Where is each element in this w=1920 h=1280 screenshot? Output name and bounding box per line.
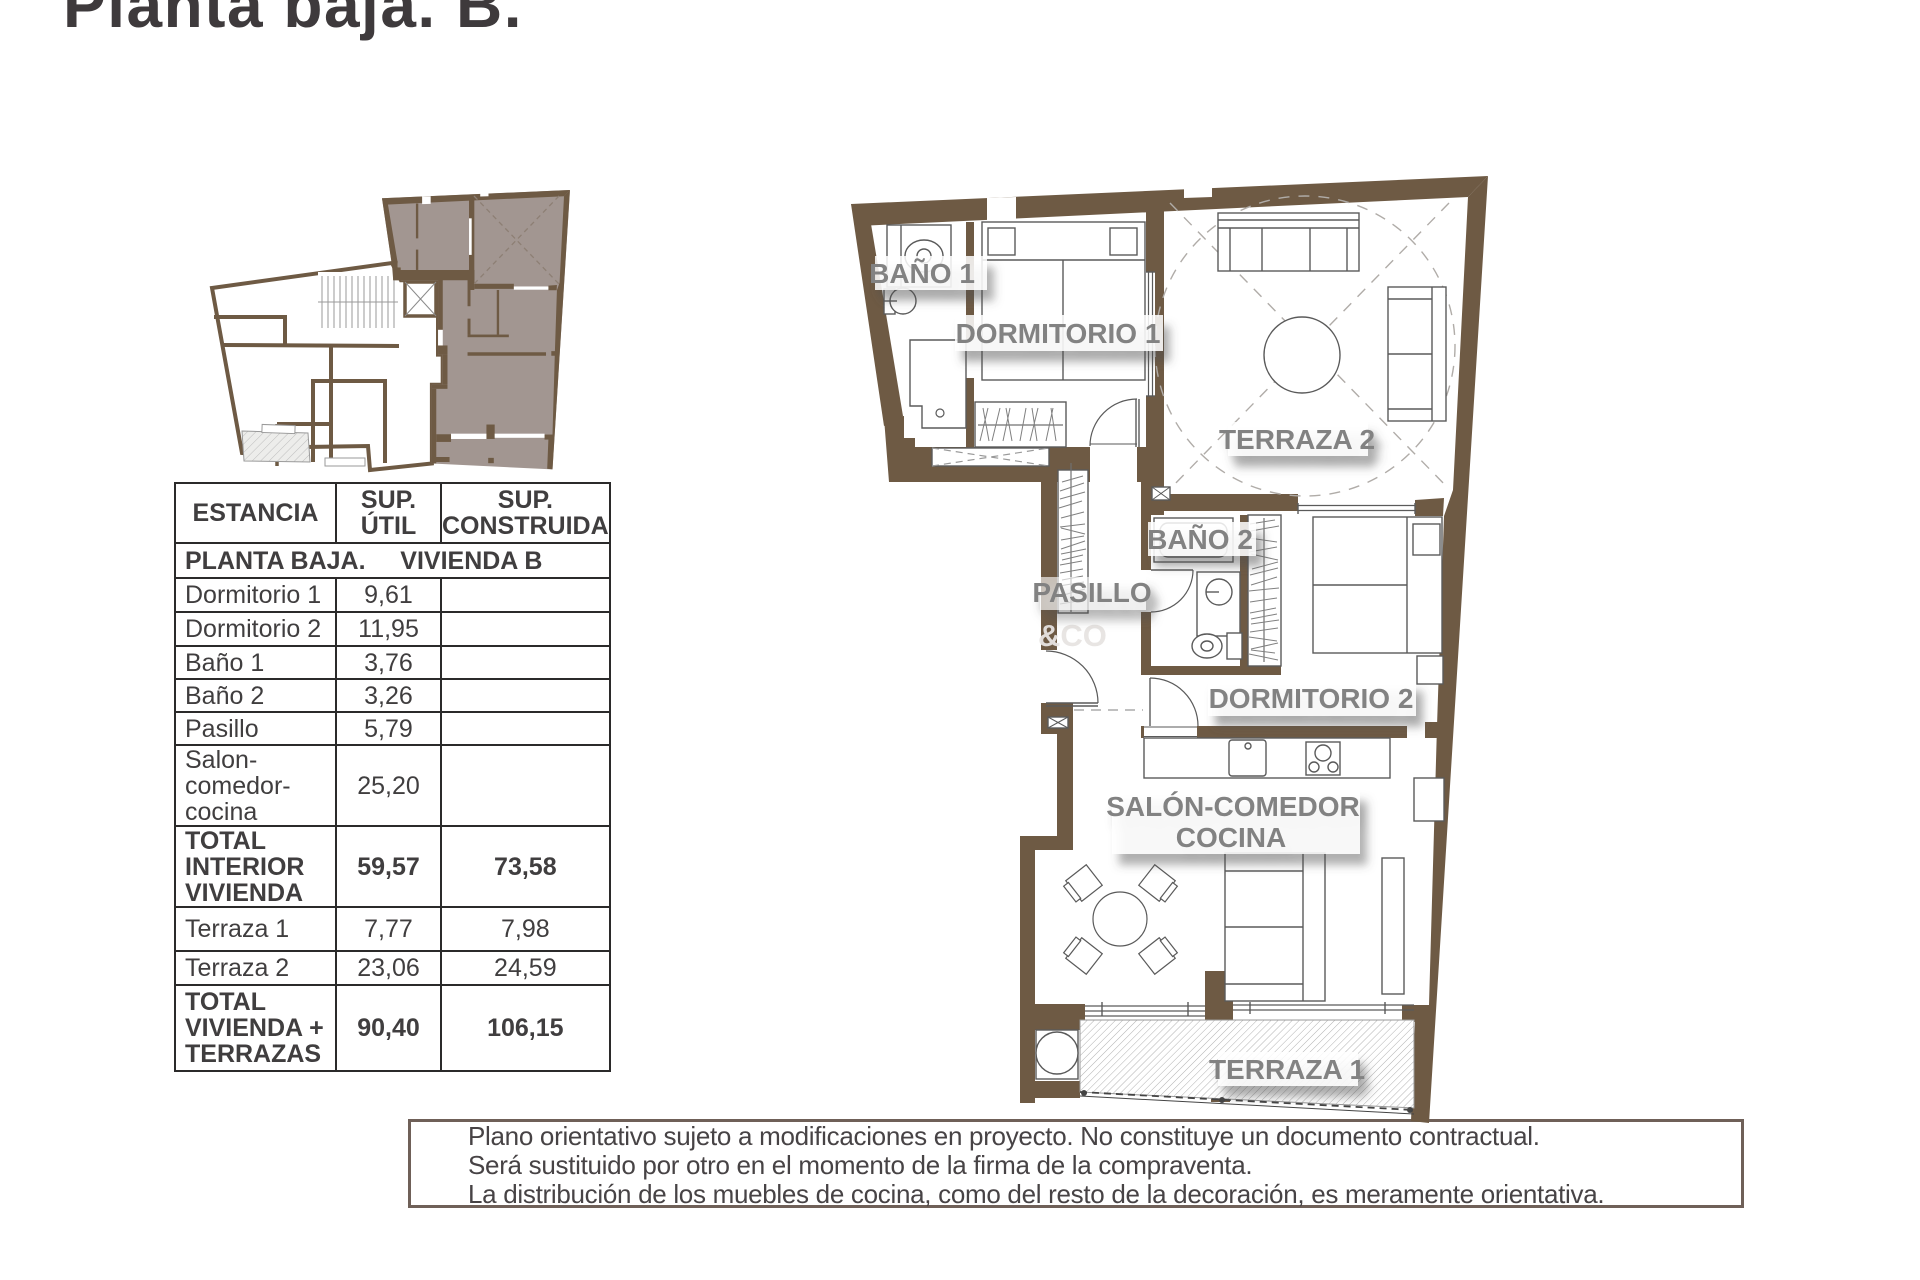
- svg-text:&CO: &CO: [1038, 618, 1107, 653]
- svg-text:BAÑO 2: BAÑO 2: [1147, 524, 1253, 555]
- svg-text:SALÓN-COMEDOR: SALÓN-COMEDOR: [1106, 791, 1360, 822]
- svg-text:COCINA: COCINA: [1176, 822, 1286, 853]
- svg-text:DORMITORIO 2: DORMITORIO 2: [1209, 683, 1414, 714]
- svg-text:PASILLO: PASILLO: [1032, 577, 1151, 608]
- svg-text:BAÑO 1: BAÑO 1: [869, 258, 975, 289]
- svg-text:TERRAZA 1: TERRAZA 1: [1209, 1054, 1365, 1085]
- svg-text:DORMITORIO 1: DORMITORIO 1: [956, 318, 1161, 349]
- svg-text:TERRAZA 2: TERRAZA 2: [1219, 424, 1375, 455]
